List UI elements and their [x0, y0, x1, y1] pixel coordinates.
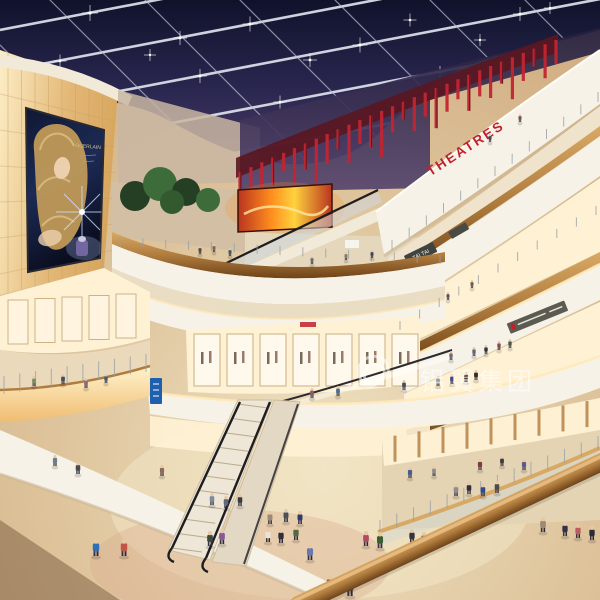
person-shadow — [431, 476, 437, 480]
person-body — [449, 353, 452, 357]
person-body — [495, 484, 500, 490]
shop-window — [326, 334, 352, 386]
slat-shade — [404, 102, 405, 120]
person-head — [403, 380, 406, 383]
person-shadow — [452, 496, 459, 500]
person-body — [160, 468, 164, 473]
bottle-cap — [78, 236, 86, 242]
person-head — [210, 493, 213, 496]
person-body — [432, 469, 436, 474]
person-body — [228, 250, 231, 254]
sparkle — [309, 59, 312, 62]
slat — [554, 40, 557, 64]
perfume-bottle — [76, 240, 88, 256]
person-shadow — [574, 538, 582, 542]
person-body — [265, 532, 270, 539]
shop-logo-red — [300, 322, 316, 327]
person-shadow — [228, 256, 233, 260]
person-body — [562, 526, 567, 533]
person-head — [495, 481, 498, 484]
person-head — [467, 482, 470, 485]
person-shadow — [521, 470, 528, 474]
person-head — [62, 374, 65, 377]
person-shadow — [292, 540, 300, 544]
mannequin — [333, 352, 336, 364]
slat — [380, 111, 383, 157]
directory-banner — [150, 378, 162, 404]
person-head — [53, 455, 56, 458]
person-body — [210, 496, 215, 502]
slat — [413, 97, 416, 131]
person-shadow — [83, 388, 89, 392]
person-body — [219, 533, 225, 540]
shop-window — [194, 334, 220, 386]
mannequin — [267, 352, 270, 364]
person-shadow — [74, 474, 81, 478]
watermark-text: 铝翼集团 — [420, 367, 536, 396]
person-body — [454, 487, 459, 493]
sparkle — [549, 7, 551, 9]
person-head — [478, 459, 481, 462]
person-shadow — [470, 288, 475, 292]
person-body — [377, 536, 383, 544]
person-body — [61, 377, 65, 382]
person-body — [540, 521, 546, 528]
slat-shade — [273, 158, 274, 186]
person-body — [500, 459, 504, 464]
person-head — [298, 511, 302, 515]
person-body — [336, 389, 340, 394]
person-shadow — [345, 596, 356, 600]
person-head — [447, 292, 449, 294]
sparkle — [199, 75, 202, 78]
person-head — [454, 484, 457, 487]
shop-window — [293, 334, 319, 386]
person-body — [408, 470, 412, 475]
person-head — [450, 351, 453, 354]
person-head — [576, 524, 580, 528]
person-head — [433, 466, 436, 469]
person-shadow — [212, 252, 217, 256]
person-head — [337, 386, 340, 389]
shop-window — [227, 334, 253, 386]
person-shadow — [493, 493, 500, 497]
far-store-sign — [345, 240, 359, 248]
person-body — [478, 462, 482, 467]
person-head — [105, 374, 108, 377]
person-body — [363, 535, 369, 542]
sparkle — [279, 101, 282, 104]
slat-shade — [338, 129, 339, 149]
person-body — [497, 343, 500, 347]
person-head — [408, 467, 411, 470]
shop-window — [392, 334, 418, 386]
shop-window — [260, 334, 286, 386]
sparkle — [149, 54, 151, 56]
person-body — [224, 499, 229, 505]
person-body — [488, 136, 491, 140]
person-head — [522, 459, 525, 462]
person-shadow — [103, 383, 108, 387]
shop-window — [89, 296, 109, 340]
slat — [456, 79, 459, 99]
person-body — [522, 462, 526, 467]
person-shadow — [479, 496, 486, 500]
person-shadow — [52, 466, 59, 470]
person-head — [489, 134, 491, 136]
person-body — [76, 465, 81, 471]
person-body — [409, 533, 414, 540]
sparkle — [359, 44, 362, 47]
shop-window — [8, 300, 28, 344]
person-shadow — [446, 300, 451, 304]
person-body — [307, 548, 313, 556]
person-head — [284, 509, 288, 513]
sparkle — [59, 60, 62, 63]
person-shadow — [296, 524, 304, 528]
slat — [424, 93, 427, 117]
person-head — [311, 388, 314, 391]
person-head — [220, 529, 224, 533]
person-body — [518, 116, 521, 120]
person-shadow — [588, 540, 596, 544]
person-body — [484, 347, 487, 351]
mannequin — [234, 352, 237, 364]
person-head — [199, 246, 201, 248]
person-shadow — [206, 546, 215, 550]
person-body — [298, 514, 303, 520]
person-head — [541, 517, 545, 521]
mannequin — [275, 351, 278, 363]
person-head — [208, 531, 212, 535]
person-head — [308, 544, 312, 548]
person-head — [238, 494, 241, 497]
person-body — [207, 535, 213, 542]
slat — [391, 106, 394, 132]
person-head — [224, 496, 227, 499]
perfume-billboard: GUERLAIN — [26, 108, 108, 272]
slat — [445, 84, 448, 112]
slat — [249, 167, 252, 189]
person-body — [198, 248, 201, 252]
shop-window — [62, 297, 82, 341]
person-shadow — [335, 396, 341, 400]
slat — [358, 120, 361, 144]
person-body — [121, 543, 127, 551]
slat-shade — [371, 115, 372, 147]
person-head — [160, 465, 163, 468]
person-head — [481, 484, 484, 487]
person-head — [33, 376, 36, 379]
person-head — [94, 539, 99, 544]
person-shadow — [499, 466, 505, 470]
person-head — [509, 339, 512, 342]
sparkle — [249, 23, 252, 26]
person-head — [328, 575, 333, 580]
sparkle — [409, 19, 412, 22]
person-head — [471, 280, 473, 282]
person-shadow — [496, 350, 501, 354]
person-shadow — [60, 384, 66, 388]
person-shadow — [159, 476, 166, 480]
person-shadow — [477, 470, 484, 474]
slat-shade — [306, 143, 307, 169]
sparkle — [519, 13, 522, 16]
person-body — [84, 381, 88, 386]
person-shadow — [236, 506, 243, 510]
person-head — [590, 526, 594, 530]
person-body — [310, 391, 314, 396]
left-shop-windows — [8, 294, 136, 344]
sparkle — [88, 11, 91, 14]
person-body — [293, 530, 298, 537]
person-head — [378, 532, 382, 536]
person-body — [238, 497, 243, 503]
person-head — [85, 378, 88, 381]
person-body — [268, 514, 273, 520]
slat — [511, 57, 514, 99]
person-head — [76, 462, 79, 465]
person-shadow — [344, 260, 349, 264]
shop-window — [35, 299, 55, 343]
mannequin — [242, 351, 245, 363]
person-body — [472, 349, 475, 353]
sparkle — [479, 39, 481, 41]
slat-shade — [502, 62, 503, 84]
person-shadow — [310, 264, 315, 268]
mannequin — [341, 351, 344, 363]
person-body — [481, 487, 486, 493]
person-shadow — [222, 508, 229, 512]
scene-canvas: GUERLAIN THEATRES — [0, 0, 600, 600]
person-head — [266, 528, 270, 532]
person-body — [53, 458, 57, 463]
person-shadow — [465, 494, 472, 498]
person-head — [371, 250, 373, 252]
slat — [326, 134, 329, 164]
person-shadow — [518, 122, 523, 126]
person-shadow — [282, 522, 290, 526]
person-head — [345, 252, 347, 254]
person-head — [473, 347, 476, 350]
person-body — [470, 282, 473, 286]
slat — [347, 125, 350, 163]
mannequin — [300, 352, 303, 364]
person-shadow — [561, 536, 569, 540]
slat — [489, 66, 492, 98]
person-body — [32, 379, 36, 384]
person-shadow — [370, 258, 375, 262]
mall-atrium-rendering: GUERLAIN THEATRES — [0, 0, 600, 600]
person-head — [122, 539, 127, 544]
person-head — [229, 248, 231, 250]
person-body — [370, 252, 373, 256]
person-body — [446, 294, 449, 298]
person-body — [310, 258, 313, 262]
person-head — [279, 529, 283, 533]
shop-window — [116, 294, 136, 338]
mannequin — [399, 352, 402, 364]
person-shadow — [264, 542, 272, 546]
person-body — [104, 376, 107, 380]
person-head — [563, 522, 567, 526]
person-shadow — [31, 386, 37, 390]
person-body — [575, 528, 580, 535]
person-shadow — [539, 532, 548, 536]
person-head — [311, 256, 313, 258]
person-shadow — [305, 560, 315, 564]
person-shadow — [471, 356, 476, 360]
person-body — [284, 512, 289, 518]
person-head — [364, 531, 368, 535]
person-shadow — [483, 354, 488, 358]
person-body — [93, 543, 99, 551]
person-body — [344, 254, 347, 258]
person-head — [498, 341, 501, 344]
person-body — [589, 530, 594, 537]
sparkle — [179, 37, 182, 40]
person-shadow — [218, 544, 227, 548]
person-shadow — [309, 398, 315, 402]
person-shadow — [208, 505, 215, 509]
slat — [522, 53, 525, 81]
person-head — [410, 529, 414, 533]
person-shadow — [198, 254, 203, 258]
slat — [282, 153, 285, 171]
mannequin — [308, 351, 311, 363]
person-shadow — [407, 478, 414, 482]
slat-shade — [437, 88, 438, 128]
person-shadow — [448, 360, 453, 364]
slat — [293, 148, 296, 184]
person-body — [278, 533, 283, 540]
slat — [315, 139, 318, 183]
person-shadow — [488, 142, 493, 146]
slat-shade — [535, 49, 536, 67]
person-shadow — [375, 548, 385, 552]
person-shadow — [362, 546, 371, 550]
slat — [544, 44, 547, 78]
person-body — [508, 341, 511, 345]
person-head — [519, 114, 521, 116]
person-shadow — [119, 556, 129, 560]
starburst-core — [79, 209, 85, 215]
slat-shade — [469, 75, 470, 111]
person-head — [268, 511, 272, 515]
mannequin — [407, 351, 410, 363]
person-head — [485, 345, 488, 348]
person-body — [467, 485, 472, 491]
mannequin — [201, 352, 204, 364]
person-shadow — [277, 543, 285, 547]
mannequin — [209, 351, 212, 363]
person-shadow — [91, 556, 101, 560]
person-body — [402, 383, 406, 388]
person-shadow — [266, 524, 274, 528]
person-body — [212, 246, 215, 250]
person-shadow — [401, 390, 407, 394]
slat — [478, 70, 481, 96]
person-shadow — [507, 348, 512, 352]
person-head — [501, 456, 504, 459]
person-head — [213, 244, 215, 246]
